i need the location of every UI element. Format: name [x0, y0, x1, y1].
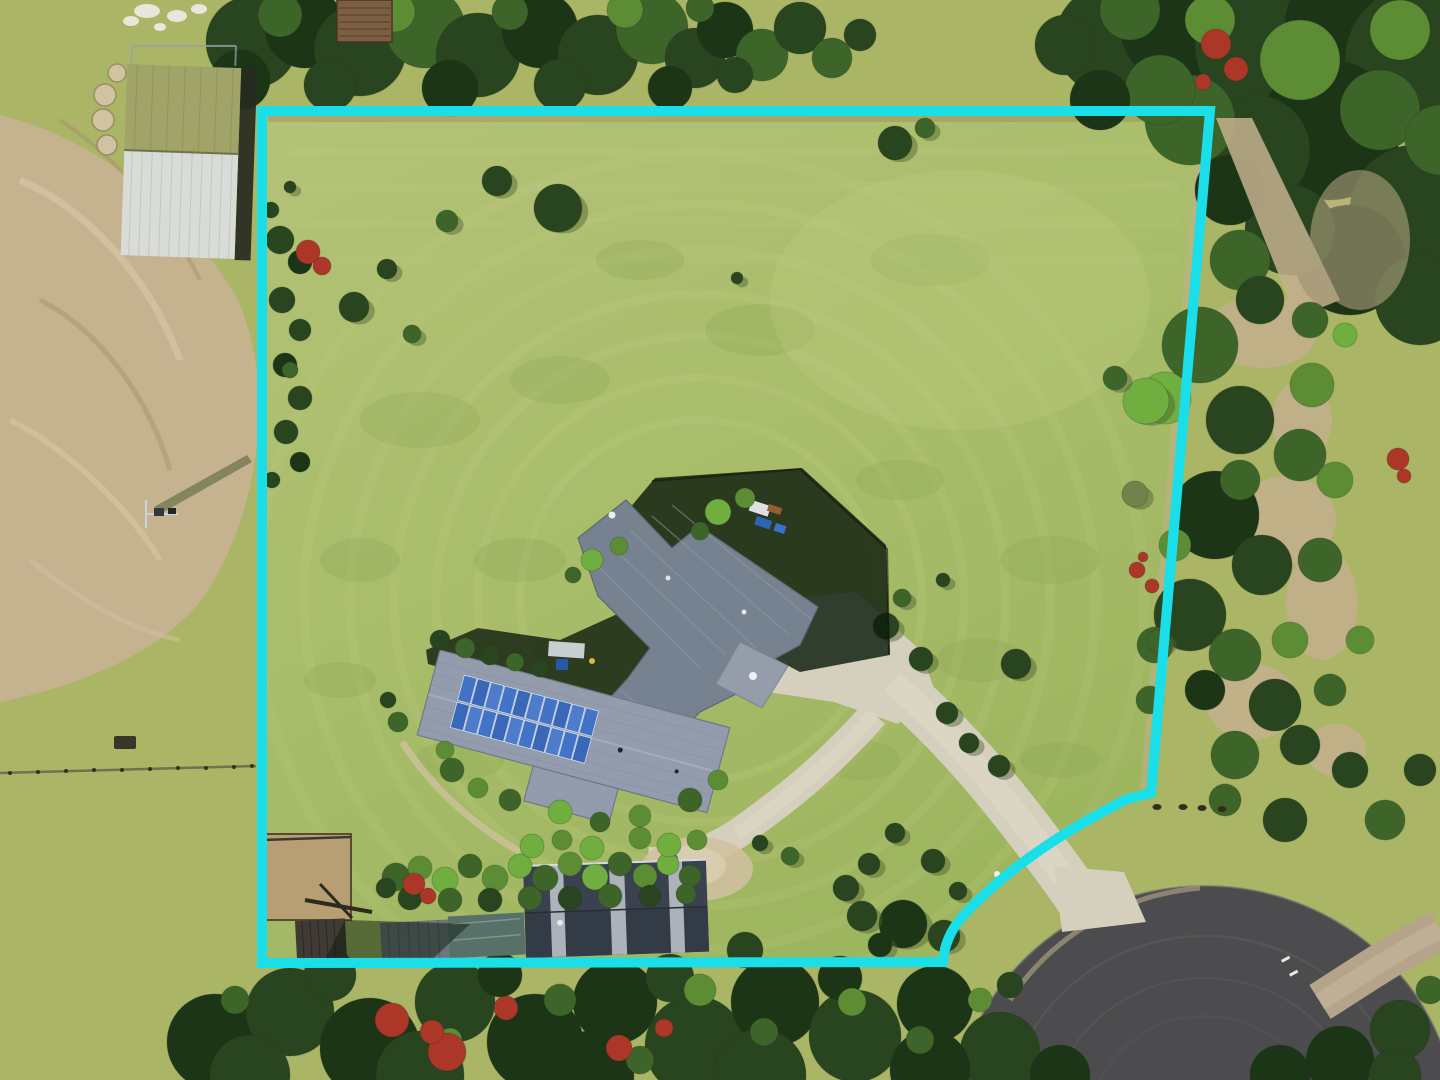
tree	[1201, 29, 1231, 59]
tree	[629, 827, 651, 849]
tree	[684, 974, 716, 1006]
tree	[936, 573, 950, 587]
tree	[885, 823, 905, 843]
tree	[1314, 674, 1346, 706]
tree	[590, 812, 610, 832]
tree	[290, 452, 310, 472]
tree	[478, 888, 502, 912]
tree	[304, 59, 356, 111]
tree	[313, 257, 331, 275]
tree	[1122, 481, 1148, 507]
tree	[1317, 462, 1353, 498]
tree	[1206, 386, 1274, 454]
tree	[430, 630, 450, 650]
tree	[1162, 307, 1238, 383]
tree	[610, 537, 628, 555]
tree	[678, 788, 702, 812]
tree	[284, 181, 296, 193]
tree	[717, 57, 753, 93]
tree	[552, 830, 572, 850]
tree	[1298, 538, 1342, 582]
tree	[380, 692, 396, 708]
tree	[1292, 302, 1328, 338]
tree	[1195, 74, 1211, 90]
tree	[482, 166, 512, 196]
tree	[388, 712, 408, 732]
tree	[403, 325, 421, 343]
tree	[468, 778, 488, 798]
courtyard-trailer	[548, 641, 585, 658]
tree	[959, 733, 979, 753]
tree	[534, 59, 586, 111]
tree	[735, 488, 755, 508]
animal	[1198, 805, 1207, 811]
tree	[781, 847, 799, 865]
tree	[893, 589, 911, 607]
tree	[436, 741, 454, 759]
tree	[1035, 15, 1095, 75]
tree	[1070, 70, 1130, 130]
courtyard-bin	[556, 659, 568, 670]
tree	[288, 386, 312, 410]
tree	[1332, 752, 1368, 788]
tree	[858, 853, 880, 875]
tree	[482, 865, 508, 891]
tree	[492, 0, 528, 30]
tree	[1103, 366, 1127, 390]
tree	[269, 287, 295, 313]
animal	[1153, 804, 1162, 810]
tree	[438, 888, 462, 912]
tree	[1387, 448, 1409, 470]
tree	[906, 1026, 934, 1054]
tree	[708, 770, 728, 790]
tree	[544, 984, 576, 1016]
tree	[499, 789, 521, 811]
tree	[1260, 20, 1340, 100]
tree	[1249, 679, 1301, 731]
tree	[657, 833, 681, 857]
tree	[548, 800, 572, 824]
tree	[494, 996, 518, 1020]
tree	[377, 259, 397, 279]
tree	[847, 901, 877, 931]
tree	[1290, 363, 1334, 407]
tree	[1211, 731, 1259, 779]
tree	[921, 849, 945, 873]
tree	[1220, 460, 1260, 500]
tree	[565, 567, 581, 583]
aerial-property-photo	[0, 0, 1440, 1080]
tree	[750, 1018, 778, 1046]
tree	[339, 292, 369, 322]
neighbour-barn	[121, 42, 258, 260]
tree	[812, 38, 852, 78]
tree	[1263, 798, 1307, 842]
tree	[844, 19, 876, 51]
tree	[1370, 0, 1430, 60]
tree	[1280, 725, 1320, 765]
tree	[648, 66, 692, 110]
tree	[420, 1020, 444, 1044]
tree	[909, 647, 933, 671]
water-trough	[114, 736, 136, 749]
tree	[606, 1035, 632, 1061]
tree	[520, 834, 544, 858]
animal	[1218, 806, 1227, 812]
tree	[676, 884, 696, 904]
tree	[580, 836, 604, 860]
tree	[633, 864, 657, 888]
tree	[558, 852, 582, 876]
tree	[968, 988, 992, 1012]
tree	[731, 272, 743, 284]
chimney	[609, 512, 616, 519]
tree	[936, 702, 958, 724]
tree	[375, 1003, 409, 1037]
tree	[282, 362, 298, 378]
tree	[1129, 562, 1145, 578]
tree	[274, 420, 298, 444]
animal	[1179, 804, 1188, 810]
tree	[531, 659, 549, 677]
garage-skylight	[749, 672, 757, 680]
tree	[1232, 535, 1292, 595]
tree	[838, 988, 866, 1016]
tree	[679, 865, 701, 887]
tree	[915, 118, 935, 138]
tree	[458, 854, 482, 878]
tree	[1404, 754, 1436, 786]
tree	[1236, 276, 1284, 324]
tree	[558, 886, 582, 910]
tree	[1145, 579, 1159, 593]
tree	[1397, 469, 1411, 483]
tree	[655, 1019, 673, 1037]
tree	[534, 184, 582, 232]
tree	[266, 226, 294, 254]
tree	[878, 126, 912, 160]
tree	[581, 549, 603, 571]
tree	[376, 878, 396, 898]
tree	[833, 875, 859, 901]
tree	[1138, 552, 1148, 562]
tree	[752, 835, 768, 851]
tree	[687, 830, 707, 850]
roof-vent-2	[742, 610, 747, 615]
tree	[598, 884, 622, 908]
tree	[518, 886, 542, 910]
courtyard-object	[589, 658, 595, 664]
tree	[221, 986, 249, 1014]
tree	[1333, 323, 1357, 347]
roof-vent	[666, 576, 671, 581]
tree	[629, 805, 651, 827]
tree	[1185, 670, 1225, 710]
tree	[949, 882, 967, 900]
tree	[1346, 626, 1374, 654]
tree	[1224, 57, 1248, 81]
tree	[506, 653, 524, 671]
tree	[436, 210, 458, 232]
tree	[639, 885, 661, 907]
tree	[691, 522, 709, 540]
tree	[289, 319, 311, 341]
tree	[1272, 622, 1308, 658]
tree	[440, 758, 464, 782]
tree	[420, 888, 436, 904]
tree	[988, 755, 1010, 777]
tree	[1365, 800, 1405, 840]
tree	[480, 645, 500, 665]
tree	[455, 638, 475, 658]
sunlit-lawn-patch	[770, 170, 1150, 430]
tree	[705, 499, 731, 525]
tree	[1416, 976, 1440, 1004]
tree	[608, 852, 632, 876]
tree	[1209, 629, 1261, 681]
aerial-photo-canvas	[0, 0, 1440, 1080]
tree	[1001, 649, 1031, 679]
tree	[868, 933, 892, 957]
tree	[997, 972, 1023, 998]
